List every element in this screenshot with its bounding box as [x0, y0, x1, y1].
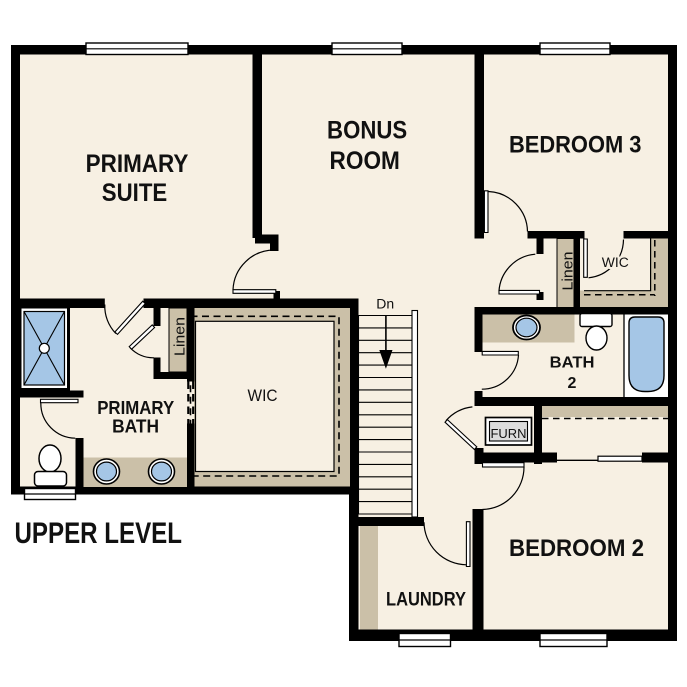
- svg-text:SUITE: SUITE: [102, 179, 167, 207]
- svg-text:Dn: Dn: [376, 296, 394, 312]
- svg-text:BEDROOM 3: BEDROOM 3: [509, 132, 642, 159]
- svg-text:BATH: BATH: [112, 415, 159, 436]
- svg-text:BONUS: BONUS: [327, 117, 407, 145]
- svg-text:BEDROOM 2: BEDROOM 2: [509, 535, 644, 562]
- svg-text:ROOM: ROOM: [330, 147, 400, 175]
- svg-text:Linen: Linen: [173, 317, 189, 356]
- svg-text:2: 2: [568, 375, 577, 392]
- svg-text:UPPER LEVEL: UPPER LEVEL: [15, 517, 183, 550]
- svg-text:FURN: FURN: [491, 426, 527, 441]
- svg-text:PRIMARY: PRIMARY: [86, 150, 189, 178]
- svg-text:Linen: Linen: [561, 252, 577, 291]
- svg-text:WIC: WIC: [602, 255, 629, 270]
- svg-text:BATH: BATH: [550, 355, 595, 372]
- svg-text:LAUNDRY: LAUNDRY: [386, 590, 466, 611]
- svg-text:WIC: WIC: [248, 387, 278, 405]
